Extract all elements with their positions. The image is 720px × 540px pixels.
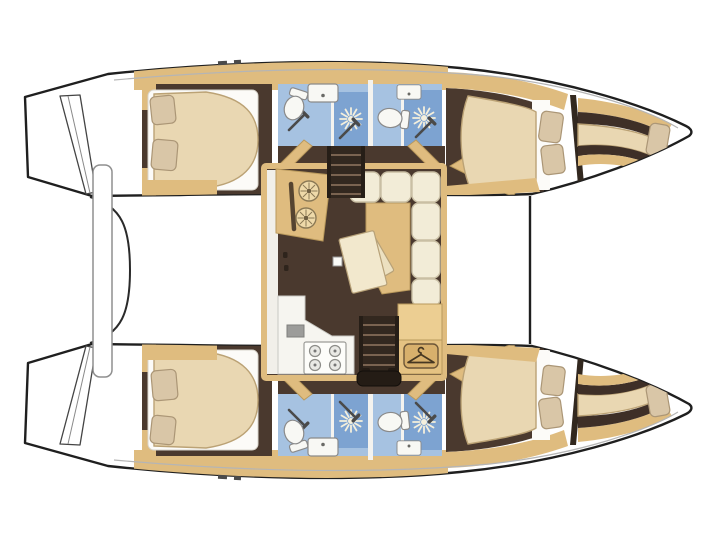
galley-counter — [276, 169, 331, 241]
table-leg — [333, 257, 342, 266]
wardrobe — [398, 304, 442, 374]
refrigerator — [287, 325, 304, 337]
counter-slot — [291, 184, 294, 229]
catamaran-floorplan — [0, 0, 720, 540]
aft-platform-bar — [93, 165, 112, 377]
stairs-to-lower-hull — [357, 316, 401, 386]
stove-icon — [304, 342, 346, 374]
catamaran-floorplan-canvas — [0, 0, 720, 540]
stairs-to-upper-hull — [327, 146, 365, 198]
stair-landing — [357, 371, 401, 386]
